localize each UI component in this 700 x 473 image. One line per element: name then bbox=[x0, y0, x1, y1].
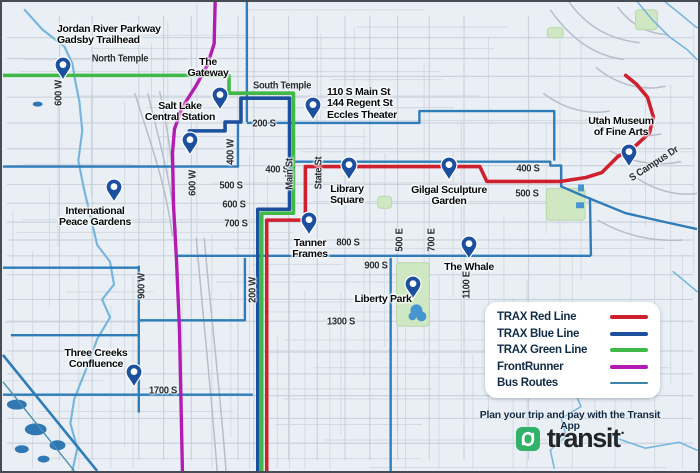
poi-label-international-peace-gardens: InternationalPeace Gardens bbox=[59, 206, 131, 229]
pond bbox=[38, 456, 50, 463]
street-label-400-s: 400 S bbox=[516, 164, 539, 175]
street-label-200-w: 200 W bbox=[248, 277, 259, 303]
water-feature bbox=[578, 184, 584, 191]
poi-label-three-creeks-confluence: Three CreeksConfluence bbox=[65, 348, 128, 371]
street-label-south-temple: South Temple bbox=[253, 81, 311, 92]
pond bbox=[25, 423, 47, 435]
park-northeast-2 bbox=[547, 28, 563, 38]
street-label-main-st: Main St bbox=[285, 158, 296, 189]
liberty-park-pond-icon bbox=[409, 312, 417, 320]
legend-label: TRAX Blue Line bbox=[497, 328, 579, 340]
transit-map: North Temple600 WSouth Temple200 S400 W6… bbox=[0, 0, 700, 473]
poi-label-the-gateway: TheGateway bbox=[187, 57, 228, 80]
routes-layer bbox=[3, 2, 697, 471]
legend-label: TRAX Green Line bbox=[497, 344, 587, 356]
bus-diagonal-sw bbox=[3, 355, 97, 471]
pin-the-whale[interactable] bbox=[460, 235, 478, 260]
poi-label-library-square: LibrarySquare bbox=[330, 184, 364, 207]
poi-label-tanner-frames: TannerFrames bbox=[292, 238, 328, 261]
pin-gilgal-sculpture-garden[interactable] bbox=[440, 156, 458, 181]
poi-label-eccles-theater: 110 S Main St144 Regent StEccles Theater bbox=[327, 87, 397, 121]
pond bbox=[33, 102, 43, 107]
transit-app-icon bbox=[516, 427, 540, 451]
street-label-500-s: 500 S bbox=[219, 181, 242, 192]
legend-line-swatch bbox=[610, 365, 648, 369]
legend-label: Bus Routes bbox=[497, 377, 558, 389]
legend-row-trax-red-line: TRAX Red Line bbox=[497, 311, 648, 323]
street-label-400-w: 400 W bbox=[226, 139, 237, 165]
pin-jordan-river-parkway[interactable] bbox=[54, 56, 72, 81]
transit-logo: transit· bbox=[470, 425, 670, 452]
legend-row-trax-blue-line: TRAX Blue Line bbox=[497, 328, 648, 340]
pin-salt-lake-central-station[interactable] bbox=[181, 131, 199, 156]
trax-blue-line bbox=[189, 98, 289, 471]
pin-library-square[interactable] bbox=[340, 156, 358, 181]
street-label-700-s: 700 S bbox=[224, 219, 247, 230]
legend-label: TRAX Red Line bbox=[497, 311, 576, 323]
legend-line-swatch bbox=[610, 382, 648, 384]
legend: TRAX Red LineTRAX Blue LineTRAX Green Li… bbox=[485, 302, 660, 398]
poi-label-the-whale: The Whale bbox=[444, 262, 494, 273]
street-label-1100-e: 1100 E bbox=[462, 271, 473, 299]
legend-line-swatch bbox=[610, 348, 648, 352]
legend-line-swatch bbox=[610, 332, 648, 336]
map-lines-layer bbox=[2, 2, 698, 471]
street-label-600-w: 600 W bbox=[54, 80, 65, 106]
brand-dot: · bbox=[621, 425, 625, 442]
legend-row-trax-green-line: TRAX Green Line bbox=[497, 344, 648, 356]
street-grid bbox=[4, 2, 697, 471]
legend-label: FrontRunner bbox=[497, 361, 563, 373]
street-label-500-s: 500 S bbox=[515, 189, 538, 200]
pond bbox=[15, 445, 29, 453]
red-butte-creek-2 bbox=[665, 2, 697, 28]
legend-row-frontrunner: FrontRunner bbox=[497, 361, 648, 373]
liberty-park-pond-icon bbox=[416, 311, 426, 321]
transit-wordmark: transit· bbox=[547, 425, 624, 452]
street-label-200-s: 200 S bbox=[252, 119, 275, 130]
street-label-600-w: 600 W bbox=[188, 170, 199, 196]
pin-tanner-frames[interactable] bbox=[300, 211, 318, 236]
street-label-north-temple: North Temple bbox=[92, 54, 149, 65]
legend-line-swatch bbox=[610, 315, 648, 319]
poi-label-salt-lake-central-station: Salt LakeCentral Station bbox=[145, 101, 215, 124]
bus-900-s-connector bbox=[590, 197, 591, 256]
street-label-1300-s: 1300 S bbox=[327, 317, 355, 328]
street-label-state-st: State St bbox=[314, 157, 325, 190]
street-label-900-w: 900 W bbox=[137, 273, 148, 299]
street-label-700-e: 700 E bbox=[427, 228, 438, 251]
street-label-1700-s: 1700 S bbox=[149, 386, 177, 397]
poi-label-liberty-park: Liberty Park bbox=[354, 294, 411, 305]
poi-label-utah-museum-of-fine-arts: Utah Museumof Fine Arts bbox=[588, 116, 654, 139]
pin-eccles-theater[interactable] bbox=[304, 96, 322, 121]
street-label-800-s: 800 S bbox=[336, 238, 359, 249]
park-small bbox=[378, 196, 392, 208]
legend-row-bus-routes: Bus Routes bbox=[497, 377, 648, 389]
pin-three-creeks-confluence[interactable] bbox=[125, 363, 143, 388]
pin-utah-museum-of-fine-arts[interactable] bbox=[620, 143, 638, 168]
poi-label-gilgal-sculpture-garden: Gilgal SculptureGarden bbox=[411, 185, 487, 208]
street-label-600-s: 600 S bbox=[222, 200, 245, 211]
poi-label-jordan-river-parkway: Jordan River ParkwayGadsby Trailhead bbox=[57, 24, 161, 47]
pin-international-peace-gardens[interactable] bbox=[105, 178, 123, 203]
street-label-900-s: 900 S bbox=[364, 261, 387, 272]
water-feature bbox=[576, 202, 584, 208]
street-label-500-e: 500 E bbox=[395, 228, 406, 251]
pond bbox=[50, 440, 66, 450]
